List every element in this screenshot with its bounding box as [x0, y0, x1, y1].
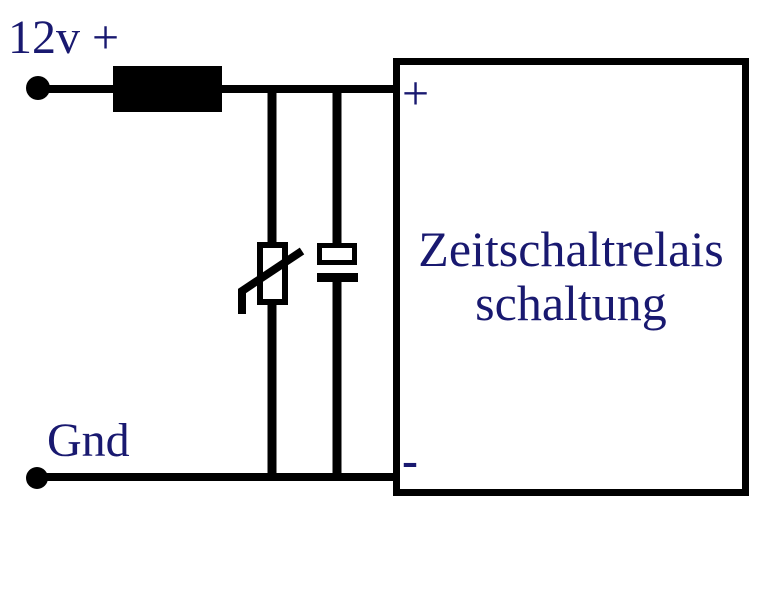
circuit-diagram: 12v + Gnd + - Zeitschaltrelais schaltung [0, 0, 768, 591]
relay-box-title: Zeitschaltrelais schaltung [393, 222, 749, 330]
relay-box-title-line1: Zeitschaltrelais [393, 222, 749, 276]
supply-terminal-dot [26, 76, 50, 100]
relay-box-title-line2: schaltung [393, 276, 749, 330]
fuse-icon [113, 66, 222, 112]
relay-minus-terminal-label: - [402, 437, 418, 485]
capacitor-negative-plate-icon [317, 273, 358, 282]
supply-voltage-label: 12v + [8, 14, 119, 62]
relay-plus-terminal-label: + [402, 70, 429, 118]
capacitor-positive-plate-icon [320, 246, 355, 263]
ground-label: Gnd [47, 417, 130, 465]
ground-terminal-dot [26, 467, 48, 489]
